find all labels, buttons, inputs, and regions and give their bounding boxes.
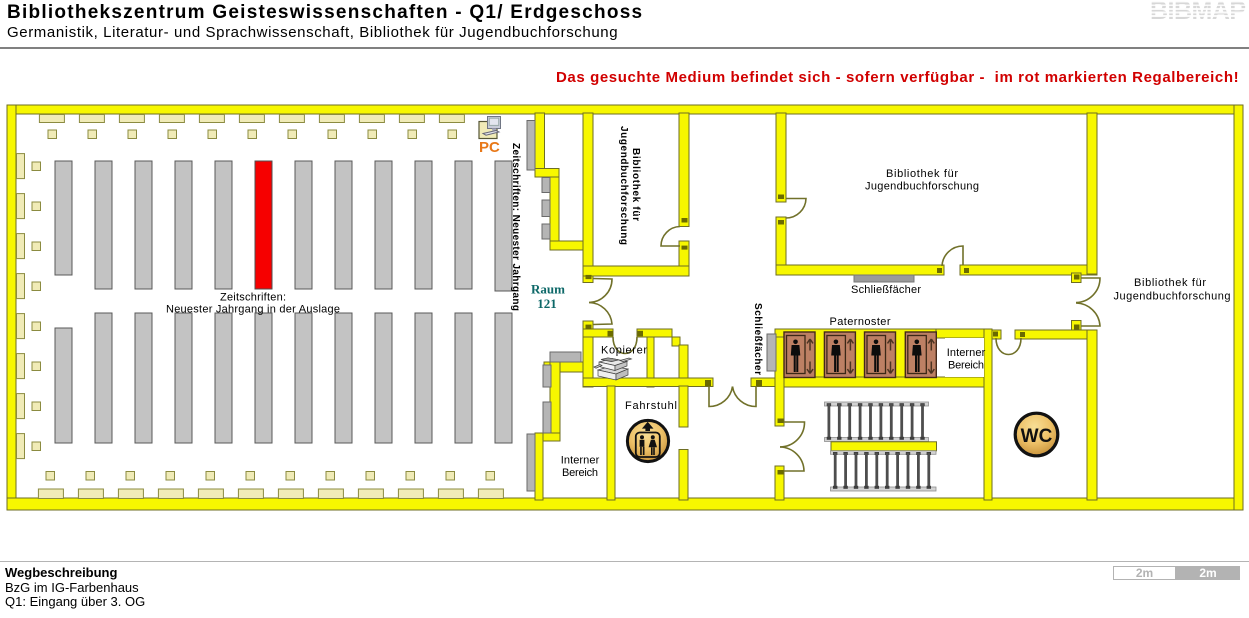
svg-text:Paternoster: Paternoster	[830, 316, 891, 328]
svg-text:121: 121	[537, 296, 557, 311]
svg-text:Raum: Raum	[531, 282, 565, 297]
svg-text:WC: WC	[1021, 426, 1053, 447]
svg-text:Bibliothek für: Bibliothek für	[1134, 277, 1206, 289]
svg-text:Zeitschriften:: Zeitschriften:	[220, 292, 286, 304]
svg-text:Zeitschriften: Neuester Jahrga: Zeitschriften: Neuester Jahrgang	[510, 143, 521, 311]
svg-text:PC: PC	[479, 139, 500, 156]
svg-text:Jugendbuchforschung: Jugendbuchforschung	[1114, 291, 1231, 303]
svg-text:Bibliothek für: Bibliothek für	[630, 148, 641, 221]
svg-text:Neuester Jahrgang in der Ausla: Neuester Jahrgang in der Auslage	[166, 304, 340, 316]
svg-text:Schließfächer: Schließfächer	[851, 284, 921, 296]
svg-text:Schließfächer: Schließfächer	[752, 303, 763, 375]
svg-text:Fahrstuhl: Fahrstuhl	[625, 400, 677, 412]
svg-text:Jugendbuchforschung: Jugendbuchforschung	[618, 126, 629, 245]
svg-text:Bibliothek für: Bibliothek für	[886, 168, 958, 180]
svg-text:Bereich: Bereich	[562, 467, 598, 479]
svg-text:Bereich: Bereich	[948, 360, 984, 372]
svg-text:Interner: Interner	[561, 455, 600, 467]
svg-text:Interner: Interner	[947, 347, 986, 359]
svg-text:Jugendbuchforschung: Jugendbuchforschung	[865, 181, 979, 193]
svg-text:Kopierer: Kopierer	[601, 345, 647, 357]
